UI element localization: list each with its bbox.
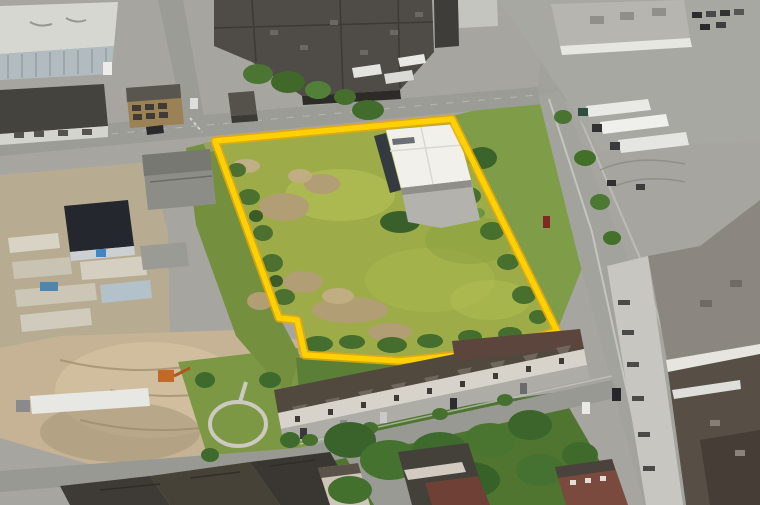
plaza-building-roof	[551, 0, 690, 46]
industrial-roof-dark-patch	[700, 430, 760, 505]
office-window	[158, 103, 167, 109]
scrub-tree-dark	[249, 210, 263, 222]
yard-tree	[432, 408, 448, 420]
verge-tree	[574, 150, 596, 166]
roof-vent	[415, 12, 423, 17]
south-strip-tree	[377, 337, 407, 353]
facade-window	[82, 129, 92, 135]
rooftop-unit	[620, 12, 634, 20]
office-window	[145, 104, 154, 110]
white-roof-building	[458, 0, 498, 28]
townhouse-window	[526, 366, 531, 372]
tree-north-verge	[352, 100, 384, 120]
wall-window	[618, 300, 630, 305]
dirt-patch	[322, 288, 354, 304]
road-tree	[271, 71, 305, 93]
car-dark	[612, 388, 621, 401]
truck-cab	[592, 124, 602, 132]
park-tree	[195, 372, 215, 388]
navy-building-roof	[64, 200, 134, 252]
driveway-car	[450, 398, 457, 409]
aerial-photo-svg	[0, 0, 760, 505]
verge-tree	[554, 110, 572, 124]
factory-annex-roof	[434, 0, 459, 48]
parked-car	[692, 12, 702, 18]
rooftop-unit	[735, 450, 745, 456]
park-tree	[259, 372, 281, 388]
semi-cab	[16, 400, 30, 412]
townhouse-window	[328, 409, 333, 415]
yard-tree	[497, 394, 513, 406]
dirt-patch	[283, 271, 323, 293]
shed	[140, 242, 189, 270]
wall-window	[622, 330, 634, 335]
car-dark	[607, 180, 616, 186]
wall-window	[643, 466, 655, 471]
wall-window	[638, 432, 650, 437]
van-near-greenhouse	[103, 62, 112, 75]
facade-window	[14, 132, 24, 138]
backyard-tree	[328, 476, 372, 504]
car-red	[543, 216, 550, 228]
park-tree	[201, 448, 219, 462]
parked-car	[700, 24, 710, 30]
townhouse-window	[559, 358, 564, 364]
brick-house-window	[585, 478, 591, 483]
aerial-photo	[0, 0, 760, 505]
townhouse-window	[460, 381, 465, 387]
office-window	[146, 113, 155, 119]
wall-window	[627, 362, 639, 367]
road-tree	[305, 81, 331, 99]
verge-tree	[590, 194, 610, 210]
dirt-patch	[259, 193, 309, 221]
truck-cab	[578, 108, 588, 116]
townhouse-window	[493, 373, 498, 379]
office-window	[132, 105, 141, 111]
rooftop-unit	[710, 420, 720, 426]
rooftop-unit	[590, 16, 604, 24]
yard-tree	[302, 434, 318, 446]
townhouse-window	[295, 416, 300, 422]
rooftop-unit	[700, 300, 712, 307]
dark-flat-building-roof	[0, 84, 108, 134]
driveway-car	[380, 412, 387, 423]
townhouse-window	[427, 388, 432, 394]
excavator	[158, 370, 174, 382]
facade-window	[58, 130, 68, 136]
car-on-north-road	[190, 98, 198, 109]
roof-vent	[390, 30, 398, 35]
brick-house-window	[570, 480, 576, 485]
office-window	[133, 114, 142, 120]
dirt-patch	[288, 169, 312, 183]
road-tree	[334, 89, 356, 105]
navy-building-door	[96, 249, 106, 257]
townhouse-window	[361, 402, 366, 408]
car-dark	[636, 184, 645, 190]
driveway-car	[520, 383, 527, 394]
parked-car	[720, 10, 730, 16]
roof-vent	[270, 30, 278, 35]
south-strip-tree	[339, 335, 365, 349]
roof-vent	[360, 50, 368, 55]
backyard-tree	[508, 410, 552, 440]
road-tree	[243, 64, 273, 84]
parked-car	[706, 11, 716, 17]
greenhouse-roof	[0, 2, 118, 54]
townhouse-window	[394, 395, 399, 401]
facade-window	[34, 131, 44, 137]
parked-car	[734, 9, 744, 15]
backyard-tree	[464, 423, 516, 457]
office-window	[159, 112, 168, 118]
verge-tree	[603, 231, 621, 245]
park-tree	[280, 432, 300, 448]
scrub-tree	[253, 225, 273, 241]
roof-vent	[300, 45, 308, 50]
wall-window	[632, 396, 644, 401]
roof-vent	[330, 20, 338, 25]
brick-house-window	[600, 476, 606, 481]
blue-bin	[40, 282, 58, 291]
small-house-roof	[228, 91, 257, 116]
rooftop-unit	[730, 280, 742, 287]
parked-car	[716, 22, 726, 28]
car-white	[582, 402, 590, 414]
rooftop-unit	[652, 8, 666, 16]
south-strip-tree	[417, 334, 443, 348]
truck-cab	[610, 142, 620, 150]
